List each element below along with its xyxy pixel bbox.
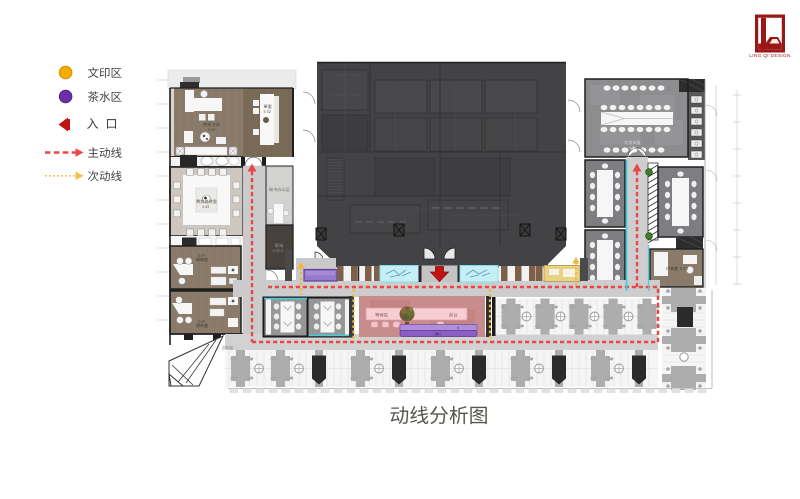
svg-text:LING QI DESIGN: LING QI DESIGN: [749, 53, 791, 59]
